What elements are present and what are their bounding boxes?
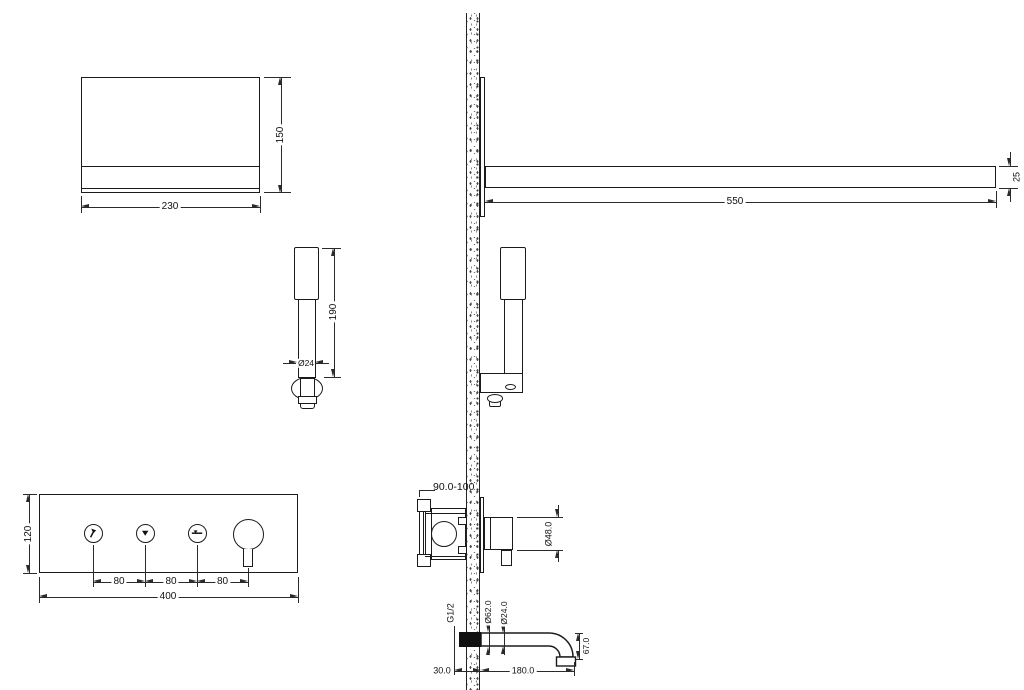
dim-label-inset: 30.0 — [432, 667, 452, 676]
ext-line — [999, 166, 1018, 167]
arrow — [81, 204, 89, 208]
ext-line — [574, 662, 575, 676]
temperature-knob — [233, 519, 264, 550]
dim-label-flange: Ø62.0 — [482, 598, 493, 625]
dim-tick — [419, 490, 420, 497]
ext-line — [324, 377, 341, 378]
arrow — [252, 204, 260, 208]
arrow — [1007, 158, 1011, 166]
arm-mounting-plate — [480, 77, 485, 217]
dim-label-height: 120 — [23, 523, 35, 544]
dim-label-drop: 67.0 — [581, 635, 592, 656]
technical-drawing: 230 150 190 Ø24 — [0, 0, 1024, 690]
arrow — [555, 509, 559, 517]
dim-label-pitch1: 80 — [111, 576, 126, 588]
dim-label-width: 230 — [160, 201, 181, 213]
shower-arm — [485, 166, 997, 188]
shower-head-outline — [81, 77, 260, 193]
dim-label-height: 190 — [328, 302, 340, 323]
trim-line — [490, 518, 491, 549]
valve-cartridge-circle — [431, 521, 457, 547]
shower-head-face-line — [82, 166, 259, 167]
dim-label-pitch2: 80 — [163, 576, 178, 588]
ext-line — [996, 191, 997, 208]
arrow — [473, 668, 481, 672]
arrow — [481, 668, 489, 672]
dim-label-profile: 25 — [1011, 170, 1022, 184]
wall-flange — [459, 632, 481, 647]
arrow — [1007, 188, 1011, 196]
arrow — [566, 668, 574, 672]
arrow — [278, 77, 282, 85]
arrow — [289, 360, 297, 364]
arrow — [576, 633, 580, 641]
arrow — [39, 594, 47, 598]
ext-line — [298, 577, 299, 603]
bracket-detail — [505, 384, 516, 390]
dim-label-pitch3: 80 — [215, 576, 230, 588]
outlet-elbow-top — [487, 394, 504, 403]
ext-line — [260, 196, 261, 213]
arrow — [988, 199, 996, 203]
arrow — [197, 579, 205, 583]
valve-body-line — [425, 513, 465, 514]
arrow — [454, 668, 462, 672]
arrow — [486, 647, 490, 655]
rainshower-icon — [139, 527, 151, 539]
handshower-head — [500, 247, 526, 300]
valve-body-line — [425, 556, 465, 557]
dim-label-reach: 180.0 — [510, 666, 537, 677]
dim-label-width: 400 — [158, 591, 179, 603]
wall-section-hatch — [466, 13, 480, 690]
arrow — [555, 550, 559, 558]
handle-trim — [484, 517, 513, 550]
arrow — [137, 579, 145, 583]
dim-label-height: 150 — [275, 125, 287, 146]
holder-socket — [300, 378, 316, 397]
arrow — [278, 185, 282, 193]
arrow — [189, 579, 197, 583]
arrow — [93, 579, 101, 583]
handshower-head — [294, 247, 319, 300]
ext-line — [248, 568, 249, 587]
arrow — [315, 360, 323, 364]
dim-label-handle: Ø48.0 — [544, 519, 555, 548]
arrow — [485, 199, 493, 203]
spout-body — [440, 600, 590, 670]
dim-label-rough-in: 90.0-100 — [433, 482, 474, 493]
shower-head-rim-line — [82, 188, 259, 189]
wall-bracket — [480, 373, 523, 394]
dim-label-pipe: Ø24.0 — [498, 599, 509, 626]
ext-line — [517, 517, 563, 518]
dim-label-length: 550 — [725, 196, 746, 208]
handle-lever — [501, 550, 512, 566]
knob-stem — [243, 549, 253, 567]
arrow — [240, 579, 248, 583]
arrow — [331, 369, 335, 377]
arrow — [145, 579, 153, 583]
valve-notch-bottom — [458, 546, 467, 554]
ext-line — [39, 577, 40, 603]
spout-icon — [191, 527, 203, 539]
handshower-icon — [87, 527, 99, 539]
holder-cap — [300, 403, 316, 409]
arrow — [576, 651, 580, 659]
dim-label-diameter: Ø24 — [297, 359, 315, 368]
arrow — [26, 494, 30, 502]
arrow — [501, 646, 505, 654]
ext-line — [23, 573, 37, 574]
valve-notch-top — [458, 517, 467, 525]
rail-tab-top — [417, 499, 431, 512]
arrow — [331, 248, 335, 256]
arrow — [290, 594, 298, 598]
handshower-handle — [504, 299, 523, 375]
arrow — [26, 565, 30, 573]
dim-label-thread: G1/2 — [446, 601, 457, 625]
